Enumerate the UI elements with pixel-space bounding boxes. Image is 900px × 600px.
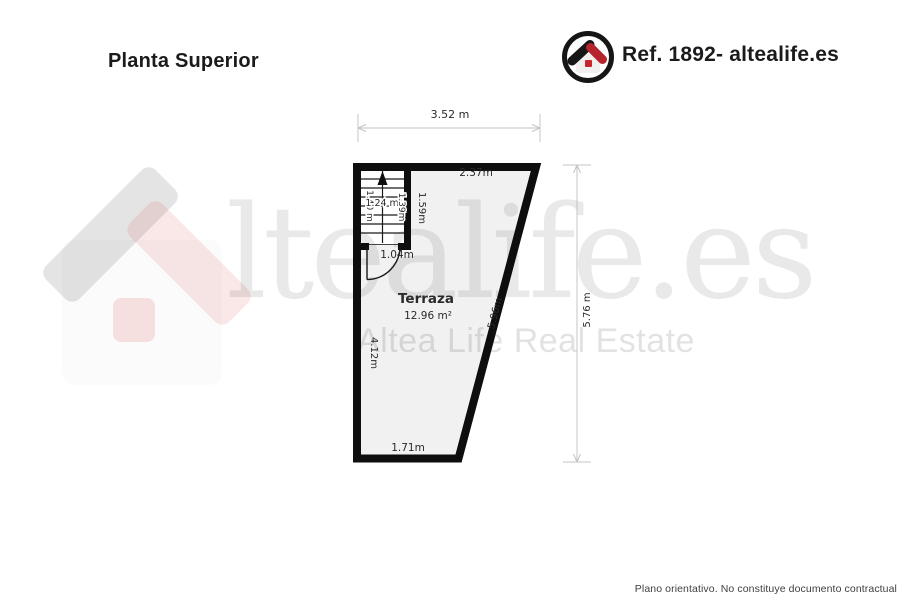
floorplan-page: ltealife.es Altea Life Real Estate [0, 0, 900, 600]
plan-drawing-layer: 3.52 m 5.76 m 2.37m 1.59m 1.40 m 1.24 m²… [0, 0, 900, 600]
dim-right-height-label: 5.76 m [582, 292, 593, 327]
agency-logo-icon [562, 31, 614, 83]
door-width-label: 1.04m [380, 249, 414, 261]
disclaimer-text: Plano orientativo. No constituye documen… [635, 583, 897, 595]
edge-top-label: 2.37m [459, 167, 493, 179]
room-area-label: 12.96 m² [404, 310, 452, 322]
stair-side-length-label: 1.59m [416, 192, 427, 224]
stair-right-flight-label: 1.39m [396, 193, 406, 222]
dim-top-width-label: 3.52 m [431, 108, 470, 121]
edge-left-label: 4.12m [368, 337, 379, 369]
edge-bottom-label: 1.71m [391, 442, 425, 454]
stair-up-arrow-icon [378, 171, 388, 185]
reference-label: Ref. 1892- altealife.es [622, 43, 839, 67]
edge-diagonal-label: 5.96m [486, 296, 505, 330]
page-title: Planta Superior [108, 50, 259, 73]
room-name-label: Terraza [398, 291, 454, 307]
